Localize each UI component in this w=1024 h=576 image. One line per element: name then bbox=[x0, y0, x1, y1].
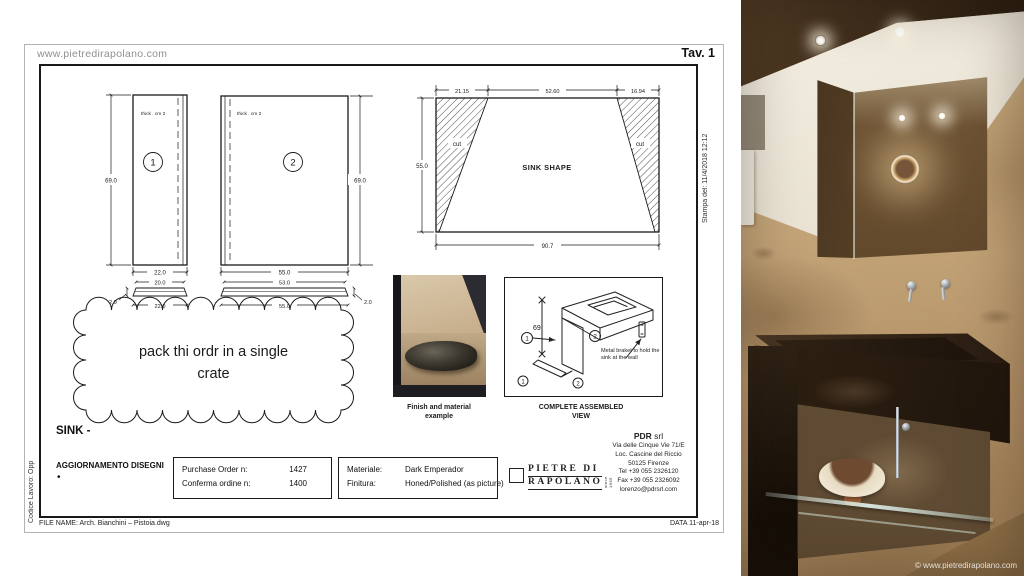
revision-bullet: • bbox=[57, 472, 61, 483]
cut-label-right: cut bbox=[636, 141, 645, 148]
revision-cloud bbox=[74, 297, 354, 423]
photo-bottom-edge bbox=[393, 385, 486, 397]
company-address-line: 50125 Firenze bbox=[599, 460, 698, 469]
table-row: Purchase Order n: 1427 bbox=[174, 462, 331, 476]
sink-dim-width-label: 90.7 bbox=[542, 244, 554, 250]
cut-label-left: cut bbox=[453, 141, 462, 148]
sheet-date: DATA 11-apr-18 bbox=[670, 520, 719, 527]
photo-left-edge bbox=[393, 275, 401, 397]
piece2-elevation bbox=[221, 96, 348, 265]
pietre-di-rapolano-logo: PIETRE DI RAPOLANO since 1955 bbox=[509, 464, 613, 490]
sketch-num3: 1 bbox=[521, 380, 525, 386]
sink-dim-top-left: 21.15 bbox=[455, 89, 469, 95]
company-block: PDR srl Via delle Cinque Vie 71/E Loc. C… bbox=[599, 431, 698, 495]
sink-shape-label: SINK SHAPE bbox=[522, 163, 571, 172]
photo-corner-shadow bbox=[452, 275, 486, 339]
piece1-dim-height-label: 69.0 bbox=[105, 179, 117, 185]
company-type: srl bbox=[654, 431, 663, 441]
material-row-value: Dark Emperador bbox=[405, 463, 464, 476]
piece1-dim-width-label: 22.0 bbox=[154, 271, 166, 277]
logo-line1: PIETRE DI bbox=[528, 464, 602, 477]
company-email: lorenzo@pdrsrl.com bbox=[599, 486, 698, 495]
piece2-dim-width-label: 55.0 bbox=[279, 271, 291, 277]
revision-heading: AGGIORNAMENTO DISEGNI bbox=[56, 461, 164, 470]
piece2-thickness-note: thick . cm 2 bbox=[237, 111, 262, 117]
finish-example-caption: Finish and material example bbox=[403, 403, 475, 421]
table-row: Finitura: Honed/Polished (as picture) bbox=[339, 476, 497, 490]
piece2-strip-thickness-label: 2.0 bbox=[364, 300, 372, 306]
sketch-num2: 2 bbox=[593, 334, 597, 341]
bracket-note: Metal braket to hold the sink at the wal… bbox=[601, 348, 661, 362]
order-row-label: Purchase Order n: bbox=[182, 463, 247, 476]
table-row: Conferma ordine n: 1400 bbox=[174, 476, 331, 490]
company-address-line: Via delle Cinque Vie 71/E bbox=[599, 442, 698, 451]
company-phone: Tel +39 055 2326120 bbox=[599, 468, 698, 477]
logo-line2: RAPOLANO bbox=[528, 477, 602, 490]
order-row-value: 1427 bbox=[289, 463, 323, 476]
material-info-table: Materiale: Dark Emperador Finitura: Hone… bbox=[338, 457, 498, 499]
table-row: Materiale: Dark Emperador bbox=[339, 462, 497, 476]
company-address-line: Loc. Cascine del Riccio bbox=[599, 451, 698, 460]
finish-example-photo bbox=[393, 275, 486, 397]
assembled-sketch: 69 1 2 1 2 bbox=[505, 278, 662, 396]
company-fax: Fax +39 055 2326092 bbox=[599, 477, 698, 486]
sink-dim-top-right: 16.94 bbox=[631, 89, 645, 95]
dark-stone-basin bbox=[405, 341, 477, 371]
file-name: FILE NAME: Arch. Bianchini – Pistoia.dwg bbox=[39, 520, 170, 527]
piece2-strip-bottom-label: 55.0 bbox=[279, 304, 290, 310]
sheet-footer: FILE NAME: Arch. Bianchini – Pistoia.dwg… bbox=[39, 520, 719, 527]
drawing-sheet: www.pietredirapolano.com Tav. 1 Stampa d… bbox=[24, 44, 724, 533]
order-row-value: 1400 bbox=[289, 477, 323, 490]
sketch-num1: 1 bbox=[525, 336, 529, 343]
piece1-thickness-note: thick . cm 2 bbox=[141, 111, 166, 117]
website-url: www.pietredirapolano.com bbox=[37, 48, 167, 60]
logo-square-icon bbox=[509, 468, 524, 483]
piece1-number: 1 bbox=[150, 158, 155, 169]
job-code-sidetext: Codice Lavoro: Opp bbox=[28, 383, 35, 523]
assembled-view-box: 69 1 2 1 2 Metal braket to hold the sink… bbox=[504, 277, 663, 397]
piece1-elevation bbox=[133, 95, 187, 265]
material-row-value: Honed/Polished (as picture) bbox=[405, 477, 504, 490]
material-row-label: Materiale: bbox=[347, 463, 405, 476]
cloud-note-line2: crate bbox=[197, 366, 229, 382]
page: www.pietredirapolano.com Tav. 1 Stampa d… bbox=[0, 0, 1024, 576]
piece1-strip-top-label: 20.0 bbox=[155, 281, 166, 287]
sink-dim-height-label: 55.0 bbox=[416, 164, 428, 170]
cloud-note-line1: pack thi ordr in a single bbox=[139, 344, 288, 360]
sheet-number: Tav. 1 bbox=[681, 46, 715, 60]
print-date-sidetext: Stampa del: 11/4/2018 12:12 bbox=[702, 63, 709, 223]
material-row-label: Finitura: bbox=[347, 477, 405, 490]
sketch-num4: 2 bbox=[576, 382, 580, 388]
assembled-view-caption: COMPLETE ASSEMBLED VIEW bbox=[538, 403, 624, 421]
drawing-title: SINK - bbox=[56, 425, 91, 437]
piece2-number: 2 bbox=[290, 158, 295, 169]
photo-watermark: © www.pietredirapolano.com bbox=[915, 561, 1017, 570]
company-name: PDR bbox=[634, 431, 652, 441]
sink-dim-top-center: 52.60 bbox=[546, 89, 560, 95]
order-info-table: Purchase Order n: 1427 Conferma ordine n… bbox=[173, 457, 332, 499]
sketch-dim-height: 69 bbox=[533, 325, 541, 332]
order-row-label: Conferma ordine n: bbox=[182, 477, 250, 490]
bathroom-photo: © www.pietredirapolano.com bbox=[741, 0, 1024, 576]
photo-vignette bbox=[741, 0, 1024, 576]
piece2-strip-top-label: 53.0 bbox=[279, 281, 290, 287]
piece2-dim-height-label: 69.0 bbox=[354, 179, 366, 185]
